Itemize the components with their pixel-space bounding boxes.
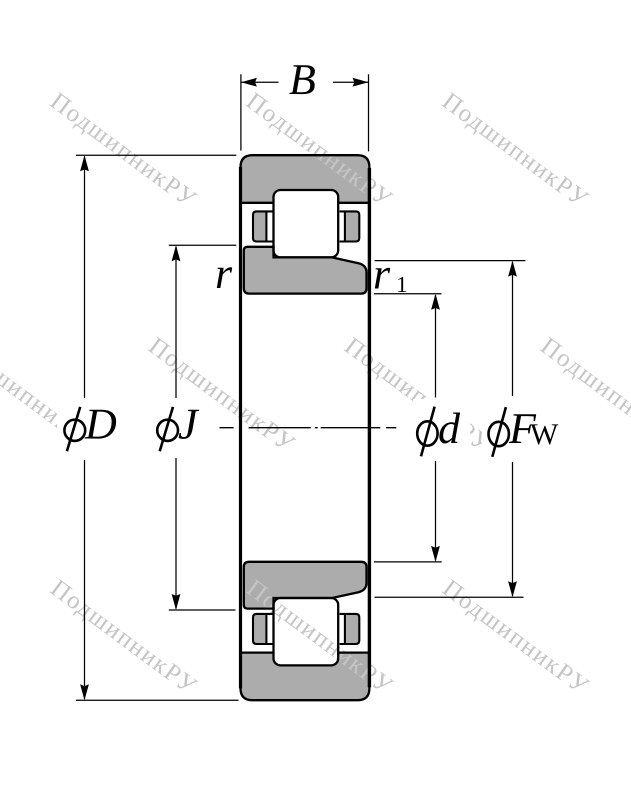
svg-text:B: B	[289, 55, 316, 104]
svg-text:ПодшипникРУ: ПодшипникРУ	[45, 88, 202, 214]
svg-text:r: r	[215, 249, 233, 298]
svg-text:ПодшипникРУ: ПодшипникРУ	[45, 575, 202, 701]
svg-text:ПодшипникРУ: ПодшипникРУ	[437, 88, 594, 214]
svg-text:r1: r1	[373, 250, 408, 299]
svg-text:D: D	[84, 400, 117, 449]
svg-text:d: d	[438, 404, 461, 453]
svg-text:ПодшипникРУ: ПодшипникРУ	[437, 575, 594, 701]
svg-text:J: J	[178, 400, 200, 449]
svg-text:W: W	[530, 418, 559, 451]
